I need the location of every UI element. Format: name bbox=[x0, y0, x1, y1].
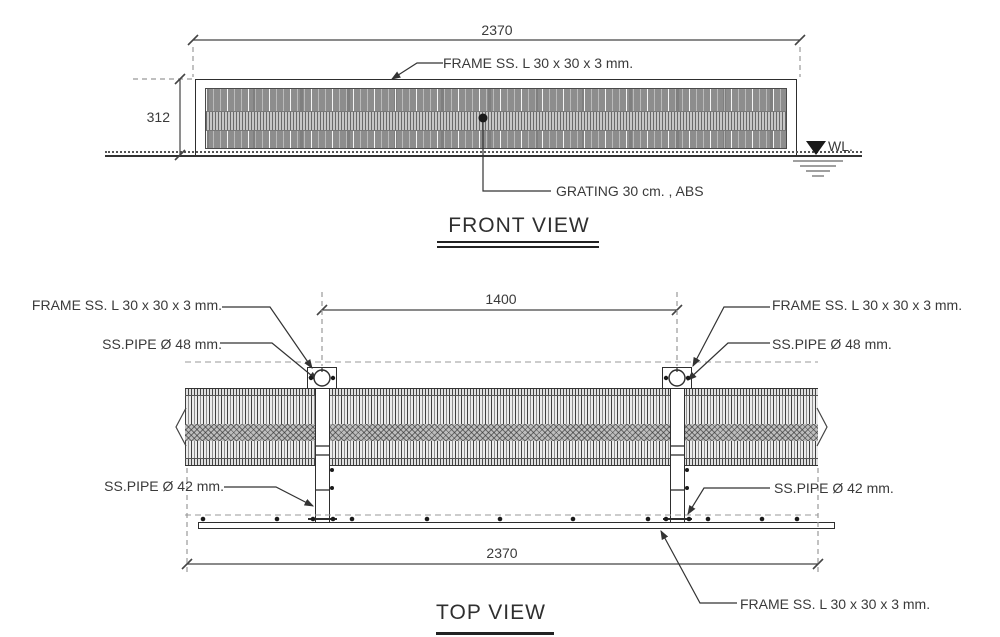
top-band-edge-bottom bbox=[185, 458, 818, 466]
pipe48-label-left: SS.PIPE Ø 48 mm. bbox=[4, 336, 222, 352]
pipe-right bbox=[670, 385, 685, 523]
top-band-mid-strip bbox=[185, 424, 818, 441]
bottom-frame-bar bbox=[198, 522, 835, 529]
pipe42-label-right: SS.PIPE Ø 42 mm. bbox=[774, 480, 894, 496]
pipe-bracket-right bbox=[662, 367, 692, 389]
top-grating-band bbox=[185, 388, 818, 466]
bracket-details bbox=[309, 368, 690, 386]
top-width-dimension-text: 2370 bbox=[464, 545, 540, 561]
pipe-spacing-dimension-text: 1400 bbox=[463, 291, 539, 307]
bottom-bar-bolts bbox=[201, 517, 800, 522]
pipe42-label-left: SS.PIPE Ø 42 mm. bbox=[4, 478, 224, 494]
grating-label: GRATING 30 cm. , ABS bbox=[556, 183, 704, 199]
top-band-edge-top bbox=[185, 388, 818, 396]
pipe48-label-right: SS.PIPE Ø 48 mm. bbox=[772, 336, 892, 352]
top-frame-label-left: FRAME SS. L 30 x 30 x 3 mm. bbox=[4, 297, 222, 313]
front-height-dimension-text: 312 bbox=[126, 109, 170, 125]
pipe-left bbox=[315, 385, 330, 523]
front-grating-mid-strip bbox=[206, 111, 786, 131]
front-frame-label: FRAME SS. L 30 x 30 x 3 mm. bbox=[443, 55, 633, 71]
engineering-drawing: 2370 FRAME SS. L 30 x 30 x 3 mm. 312 WL.… bbox=[0, 0, 1000, 637]
front-view-title: FRONT VIEW bbox=[434, 214, 604, 238]
water-line bbox=[105, 155, 862, 157]
pipe-bracket-left bbox=[307, 367, 337, 389]
front-grating bbox=[205, 88, 787, 149]
front-width-dimension-text: 2370 bbox=[459, 22, 535, 38]
bottom-frame-label: FRAME SS. L 30 x 30 x 3 mm. bbox=[740, 596, 930, 612]
water-level-label: WL. bbox=[828, 138, 853, 154]
top-view-title-underline bbox=[436, 632, 554, 635]
top-view-title: TOP VIEW bbox=[406, 601, 576, 625]
top-frame-label-right: FRAME SS. L 30 x 30 x 3 mm. bbox=[772, 297, 962, 313]
front-frame-leader bbox=[392, 63, 443, 79]
front-view-title-underline bbox=[437, 241, 599, 248]
